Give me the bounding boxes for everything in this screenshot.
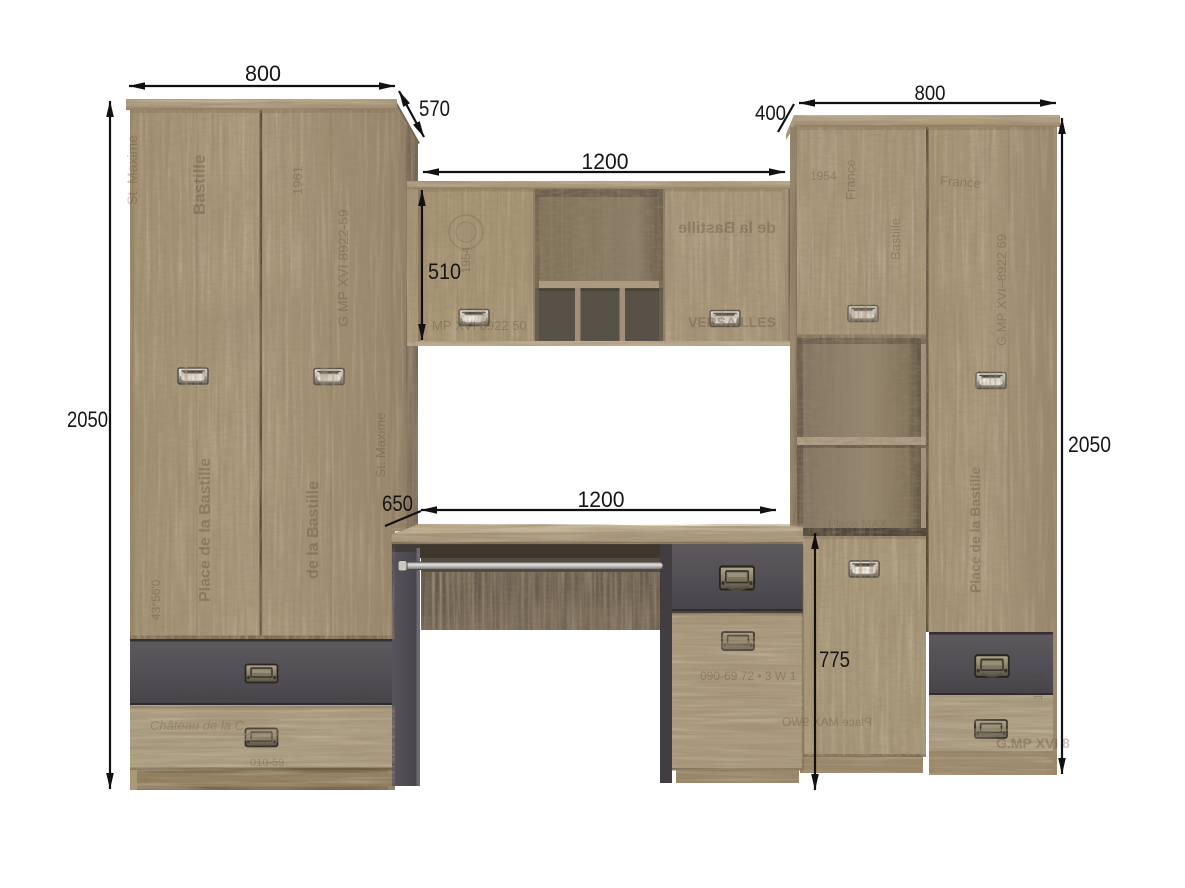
svg-text:Place MAX: Place MAX (828, 517, 887, 531)
svg-text:France: France (843, 160, 858, 200)
svg-text:775: 775 (819, 647, 850, 672)
svg-text:de la Bastille: de la Bastille (305, 481, 322, 579)
svg-text:St. Maxime: St. Maxime (124, 135, 140, 205)
svg-text:G.MP XVI 8922-59: G.MP XVI 8922-59 (335, 209, 351, 327)
svg-text:090-69 72 • 3 W 1: 090-69 72 • 3 W 1 (700, 669, 797, 683)
svg-text:010-59: 010-59 (340, 691, 374, 703)
svg-text:de la Bastille: de la Bastille (678, 220, 776, 237)
svg-text:Place de la Bastille: Place de la Bastille (967, 467, 983, 593)
svg-text:Bastille: Bastille (888, 218, 903, 260)
svg-text:400: 400 (755, 102, 786, 125)
svg-text:Colombier d’A: Colombier d’A (176, 689, 251, 703)
svg-text:1954: 1954 (459, 246, 473, 273)
svg-text:2050: 2050 (1068, 432, 1111, 457)
svg-text:Château de la C: Château de la C (150, 718, 245, 733)
svg-text:MP XVI 8922 50: MP XVI 8922 50 (432, 318, 527, 333)
svg-text:010-59: 010-59 (250, 757, 284, 769)
svg-text:Place MAX 9WO: Place MAX 9WO (782, 715, 872, 729)
svg-text:2050: 2050 (67, 407, 108, 432)
svg-text:VERSAILLES: VERSAILLES (688, 314, 776, 330)
svg-text:800: 800 (915, 82, 946, 105)
svg-text:1200: 1200 (582, 149, 629, 174)
svg-text:Bastille: Bastille (190, 155, 209, 215)
svg-text:1961: 1961 (1031, 673, 1045, 700)
svg-text:43°56′0: 43°56′0 (149, 579, 163, 620)
svg-text:St. Maxime: St. Maxime (373, 412, 388, 477)
svg-text:1954: 1954 (810, 169, 837, 183)
svg-text:1961: 1961 (290, 166, 305, 195)
svg-text:G.MP XVI 8: G.MP XVI 8 (996, 735, 1070, 751)
svg-text:1200: 1200 (578, 487, 625, 512)
svg-text:650: 650 (382, 491, 413, 516)
svg-text:570: 570 (419, 96, 450, 121)
svg-text:G.MP XVI–8922 69: G.MP XVI–8922 69 (994, 234, 1009, 346)
svg-text:510: 510 (428, 259, 461, 284)
svg-text:Place de la Bastille: Place de la Bastille (197, 458, 214, 602)
svg-text:800: 800 (245, 61, 281, 86)
svg-text:France: France (940, 173, 981, 191)
